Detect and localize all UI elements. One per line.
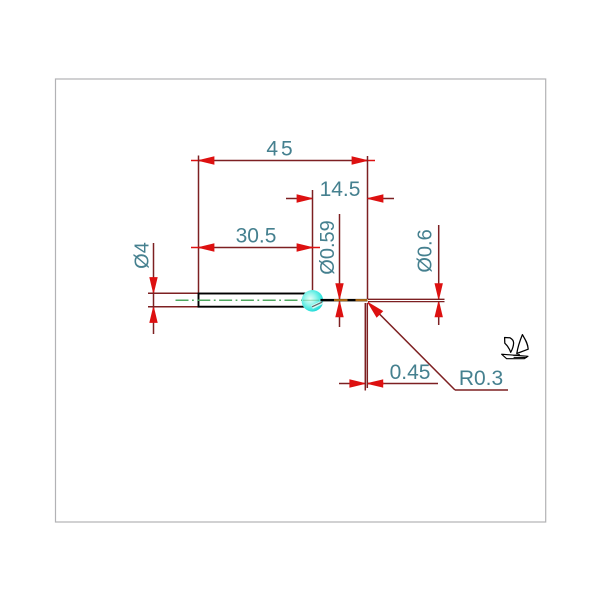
svg-text:Ø4: Ø4 [132,242,154,269]
svg-text:Ø0.59: Ø0.59 [317,220,339,274]
svg-text:R0.3: R0.3 [459,367,503,390]
svg-text:45: 45 [266,138,295,161]
svg-text:0.45: 0.45 [390,361,431,384]
svg-text:30.5: 30.5 [236,225,277,248]
svg-text:14.5: 14.5 [320,178,361,201]
svg-text:Ø0.6: Ø0.6 [415,229,437,272]
